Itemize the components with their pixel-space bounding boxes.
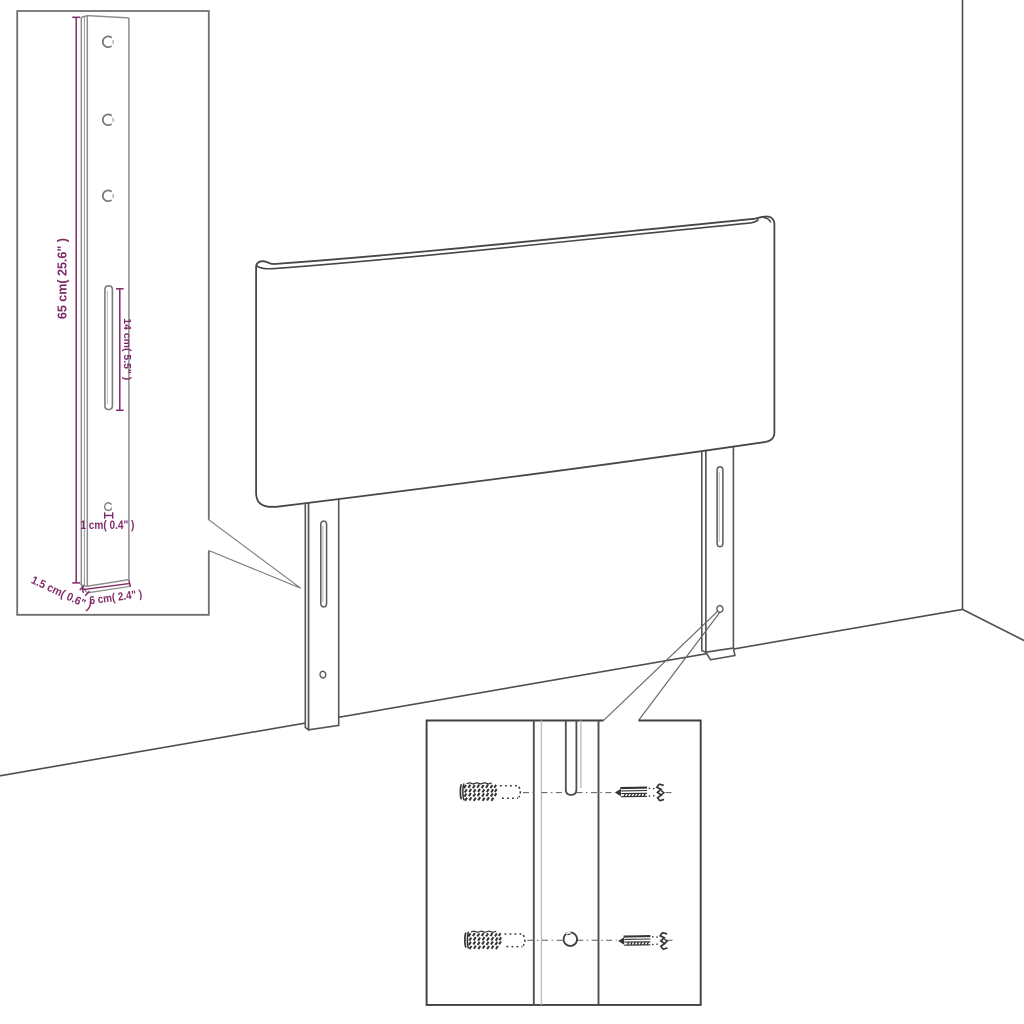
svg-text:1 cm( 0.4" ): 1 cm( 0.4" ) xyxy=(80,520,134,532)
svg-text:14 cm( 5.5" ): 14 cm( 5.5" ) xyxy=(121,318,133,380)
svg-text:65 cm( 25.6" ): 65 cm( 25.6" ) xyxy=(55,238,70,319)
